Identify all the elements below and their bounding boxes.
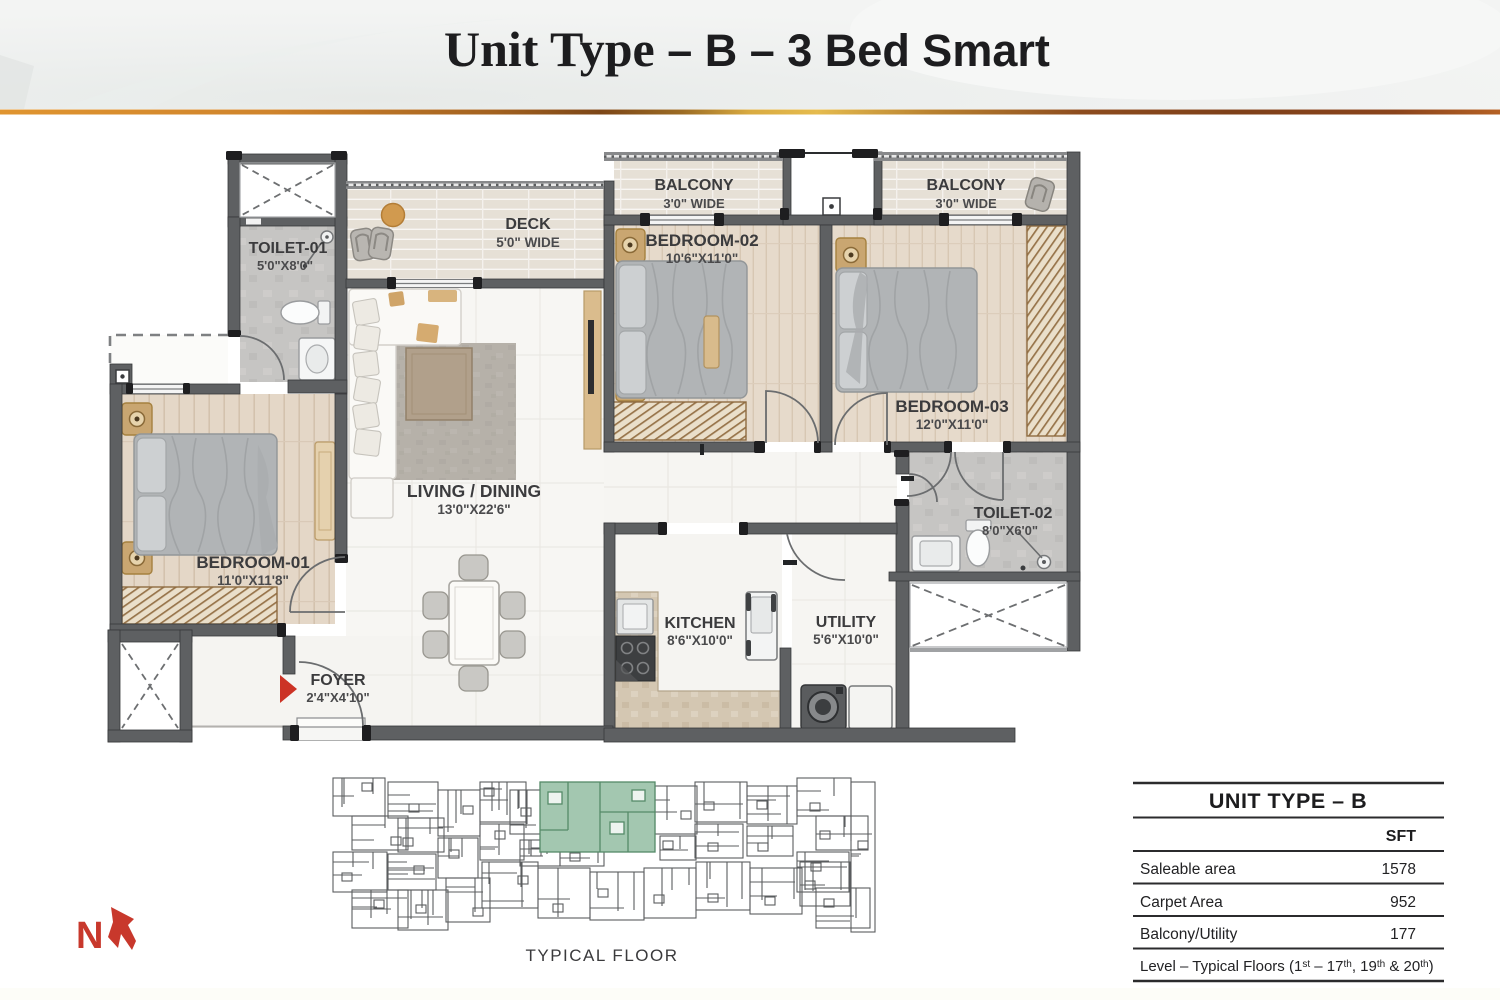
svg-text:N: N bbox=[76, 915, 103, 957]
svg-text:2'4"X4'10": 2'4"X4'10" bbox=[306, 690, 369, 705]
svg-text:SFT: SFT bbox=[1386, 828, 1416, 845]
svg-text:BALCONY: BALCONY bbox=[654, 177, 733, 194]
svg-text:DECK: DECK bbox=[505, 216, 551, 233]
svg-text:3'0" WIDE: 3'0" WIDE bbox=[935, 196, 997, 211]
svg-text:Unit Type – B – 3 Bed Smart: Unit Type – B – 3 Bed Smart bbox=[444, 21, 1050, 77]
svg-text:3'0" WIDE: 3'0" WIDE bbox=[663, 196, 725, 211]
svg-text:5'0" WIDE: 5'0" WIDE bbox=[496, 235, 560, 250]
svg-text:5'6"X10'0": 5'6"X10'0" bbox=[813, 632, 879, 647]
svg-text:TOILET-01: TOILET-01 bbox=[249, 240, 328, 257]
svg-text:TOILET-02: TOILET-02 bbox=[974, 505, 1053, 522]
svg-text:UTILITY: UTILITY bbox=[816, 614, 877, 631]
svg-text:KITCHEN: KITCHEN bbox=[664, 615, 735, 632]
svg-text:10'6"X11'0": 10'6"X11'0" bbox=[666, 251, 739, 266]
svg-text:Level – Typical Floors (1st –: Level – Typical Floors (1st – 17th, 19th… bbox=[1140, 958, 1434, 975]
svg-text:Balcony/Utility: Balcony/Utility bbox=[1140, 926, 1238, 943]
svg-text:1578: 1578 bbox=[1382, 861, 1416, 878]
svg-text:UNIT TYPE – B: UNIT TYPE – B bbox=[1209, 789, 1367, 813]
svg-text:BEDROOM-01: BEDROOM-01 bbox=[196, 553, 309, 572]
svg-text:8'6"X10'0": 8'6"X10'0" bbox=[667, 633, 733, 648]
svg-text:177: 177 bbox=[1390, 926, 1416, 943]
svg-text:11'0"X11'8": 11'0"X11'8" bbox=[217, 573, 289, 588]
svg-text:BEDROOM-03: BEDROOM-03 bbox=[895, 397, 1008, 416]
svg-text:5'0"X8'0": 5'0"X8'0" bbox=[257, 258, 313, 273]
svg-text:12'0"X11'0": 12'0"X11'0" bbox=[916, 417, 989, 432]
svg-text:FOYER: FOYER bbox=[310, 672, 366, 689]
svg-text:TYPICAL FLOOR: TYPICAL FLOOR bbox=[525, 946, 678, 965]
svg-text:BALCONY: BALCONY bbox=[926, 177, 1005, 194]
svg-text:Carpet Area: Carpet Area bbox=[1140, 894, 1223, 911]
svg-text:LIVING / DINING: LIVING / DINING bbox=[407, 481, 541, 501]
svg-text:Saleable area: Saleable area bbox=[1140, 861, 1236, 878]
svg-text:8'0"X6'0": 8'0"X6'0" bbox=[982, 523, 1038, 538]
svg-text:13'0"X22'6": 13'0"X22'6" bbox=[437, 502, 510, 517]
svg-text:BEDROOM-02: BEDROOM-02 bbox=[645, 231, 758, 250]
svg-text:952: 952 bbox=[1390, 894, 1416, 911]
